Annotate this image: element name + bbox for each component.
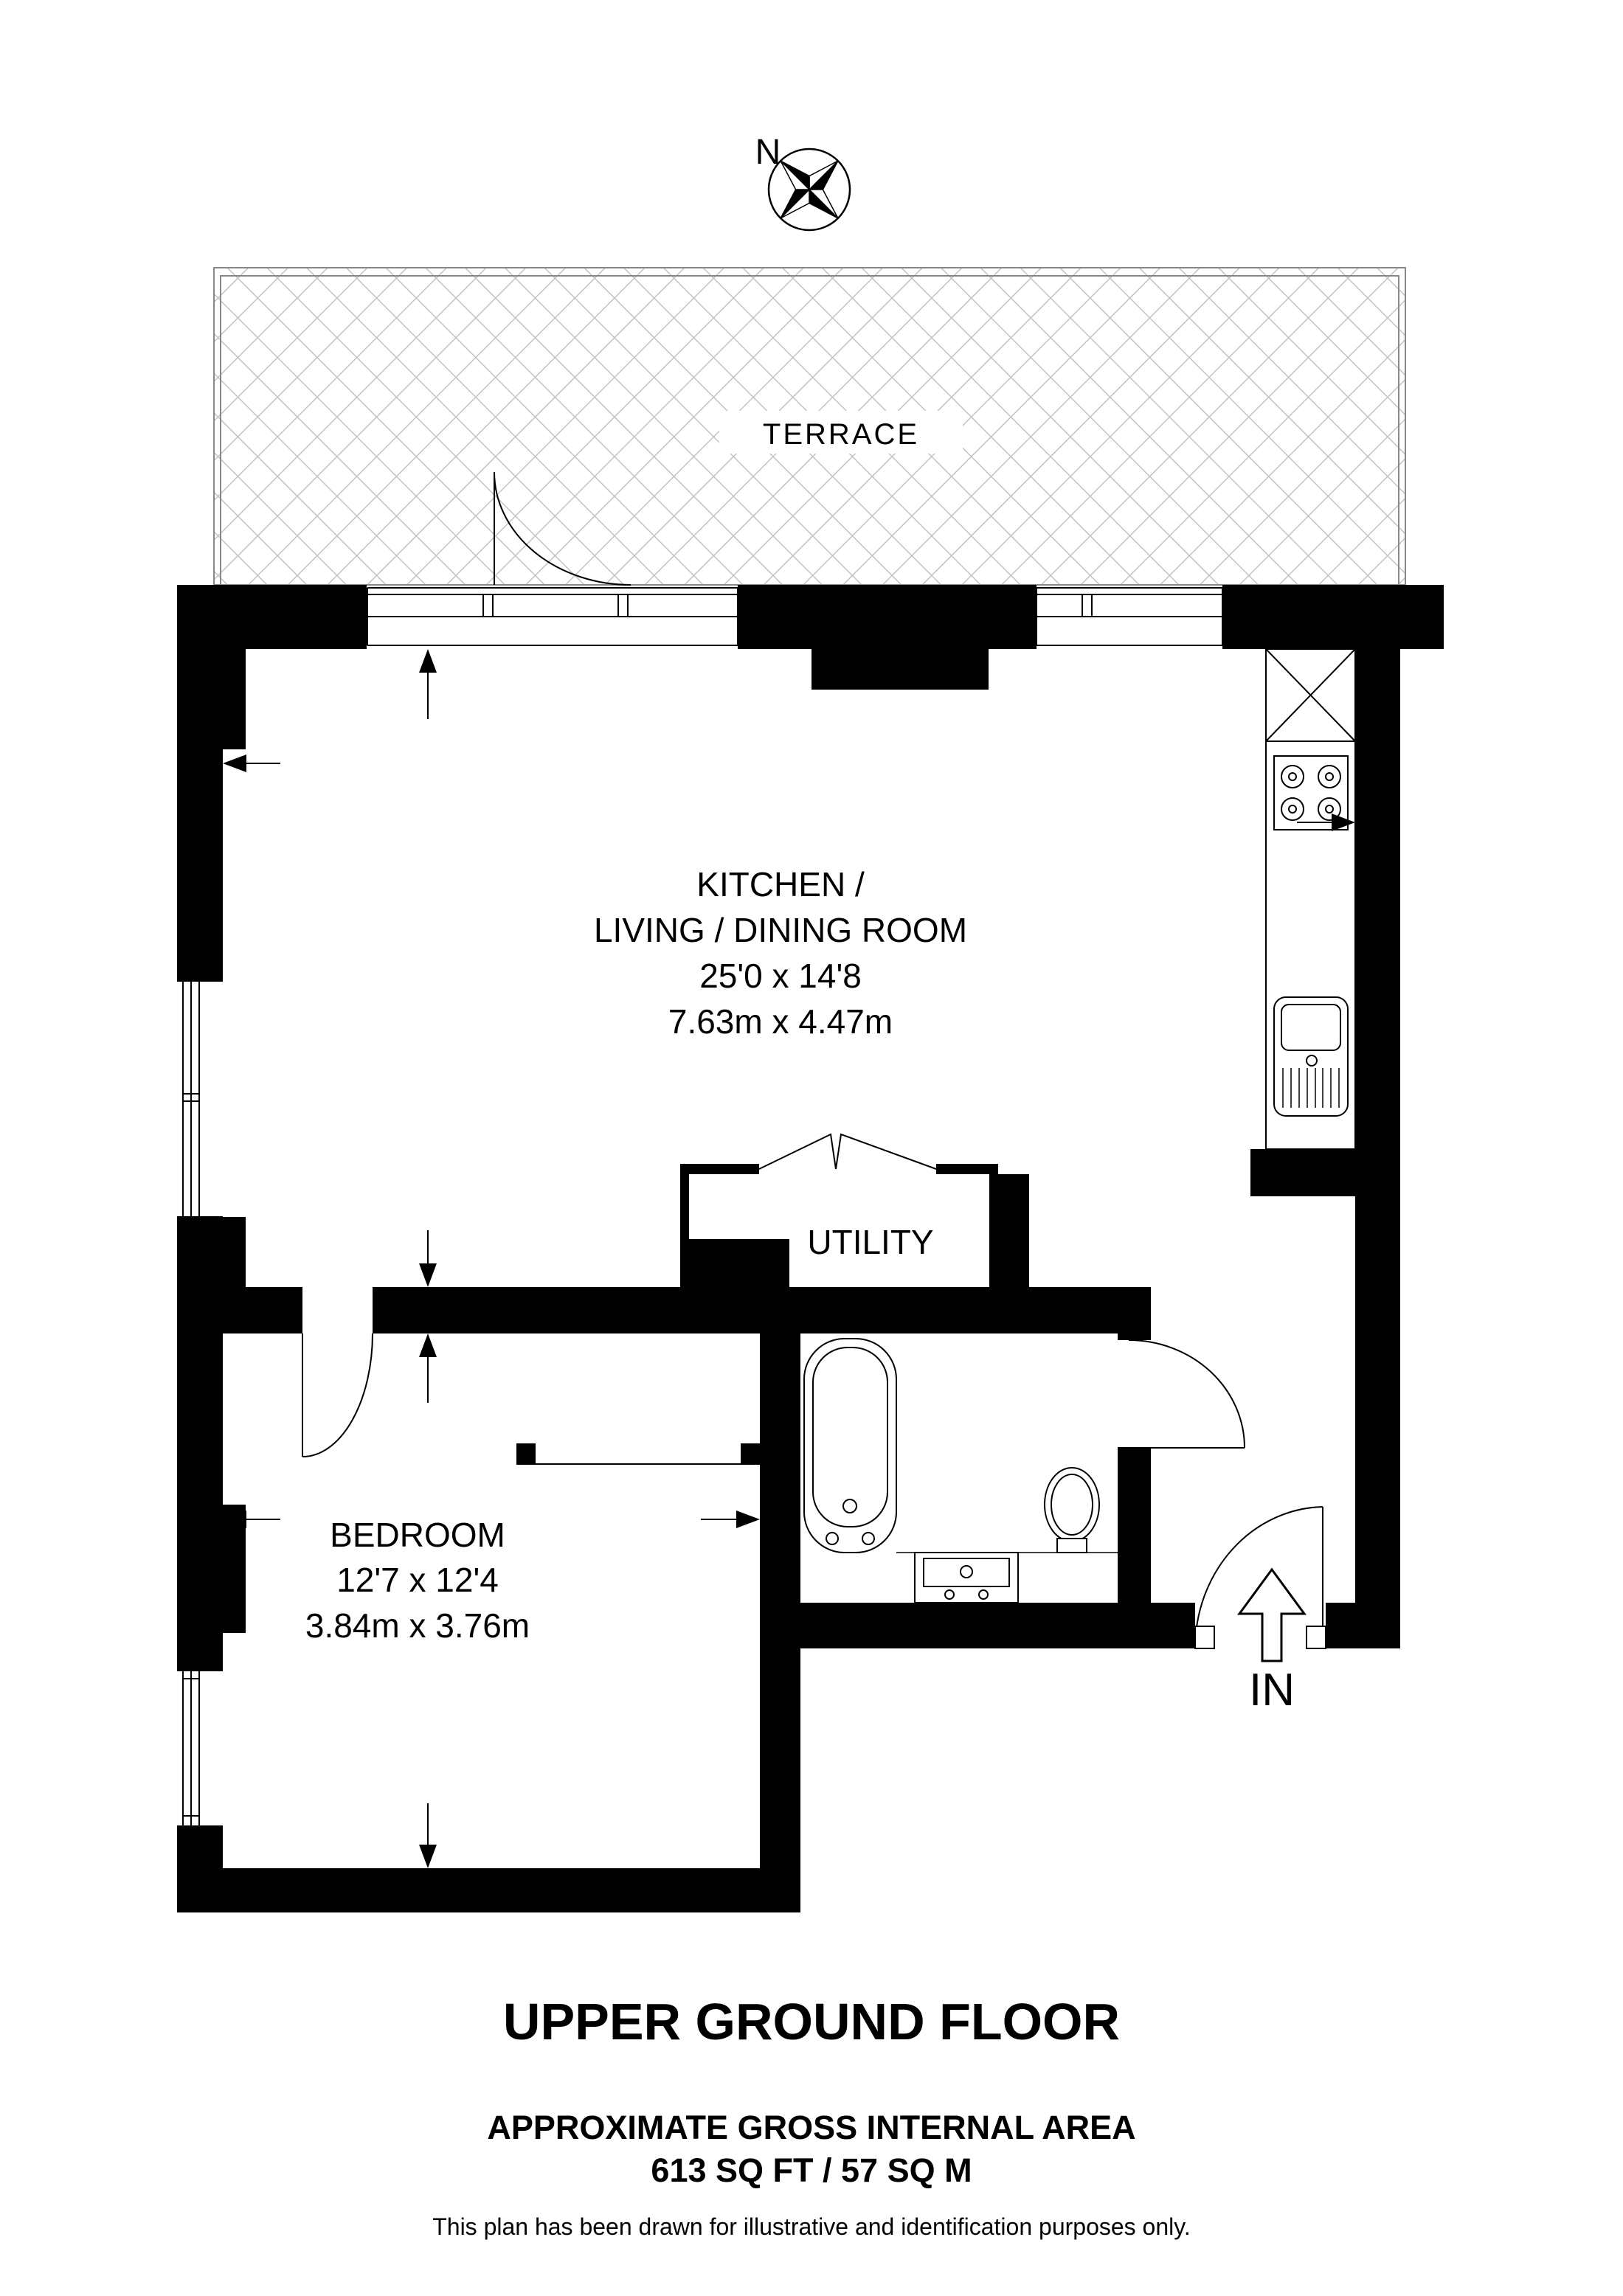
wall-utility-block — [682, 1239, 789, 1287]
bedroom-dims-imperial: 12'7 x 12'4 — [336, 1561, 499, 1599]
kitchen-fixtures — [1266, 649, 1355, 1149]
wall-left-mid-pad — [223, 1217, 246, 1287]
area-value: 613 SQ FT / 57 SQ M — [651, 2151, 972, 2189]
wall-top-right — [1222, 585, 1444, 649]
kitchen-label-line2: LIVING / DINING ROOM — [594, 911, 967, 949]
area-heading: APPROXIMATE GROSS INTERNAL AREA — [487, 2109, 1135, 2146]
wall-utility-top-right — [936, 1164, 998, 1174]
wall-bathroom-south — [760, 1603, 1195, 1648]
sink-icon — [1274, 997, 1348, 1116]
utility-label: UTILITY — [807, 1223, 933, 1261]
floorplan-page: N TERRACE — [0, 0, 1623, 2296]
wall-top-middle — [738, 585, 1037, 649]
bathtub-icon — [804, 1339, 896, 1553]
wall-left-bedroom-upper — [177, 1287, 223, 1671]
floor-title: UPPER GROUND FLOOR — [503, 1993, 1120, 2050]
wall-bedroom-south — [177, 1868, 800, 1912]
floorplan-drawing: N TERRACE — [0, 0, 1623, 2296]
wall-left-upper — [177, 749, 223, 981]
bedroom-label: BEDROOM — [330, 1516, 505, 1554]
bedroom-dims-metric: 3.84m x 3.76m — [305, 1606, 530, 1645]
entrance-label: IN — [1249, 1665, 1295, 1716]
wall-bathroom-east-upper — [1118, 1287, 1151, 1340]
wall-bedroom-east — [760, 1287, 800, 1912]
wall-middle-b — [373, 1287, 760, 1333]
wall-right — [1355, 649, 1400, 1648]
entrance-jamb-right — [1307, 1626, 1326, 1648]
wall-middle-a — [223, 1287, 302, 1333]
north-label: N — [755, 133, 781, 172]
wall-counter-end — [1250, 1149, 1400, 1196]
wall-left-mid — [177, 1217, 223, 1287]
wall-utility-top-left — [680, 1164, 759, 1174]
wall-utility-right — [989, 1174, 1029, 1287]
wall-bathroom-north — [800, 1287, 1118, 1333]
basin-icon — [915, 1553, 1018, 1603]
disclaimer-text: This plan has been drawn for illustrativ… — [432, 2213, 1191, 2240]
wall-top-pier — [811, 649, 989, 690]
appliance-icon — [1266, 649, 1355, 741]
kitchen-dims-imperial: 25'0 x 14'8 — [699, 957, 862, 995]
entrance-jamb-left — [1195, 1626, 1214, 1648]
wall-left-corner — [177, 585, 246, 749]
terrace-area: TERRACE — [214, 268, 1405, 585]
terrace-label: TERRACE — [763, 418, 919, 451]
kitchen-dims-metric: 7.63m x 4.47m — [668, 1002, 893, 1041]
kitchen-label-line1: KITCHEN / — [696, 865, 865, 904]
